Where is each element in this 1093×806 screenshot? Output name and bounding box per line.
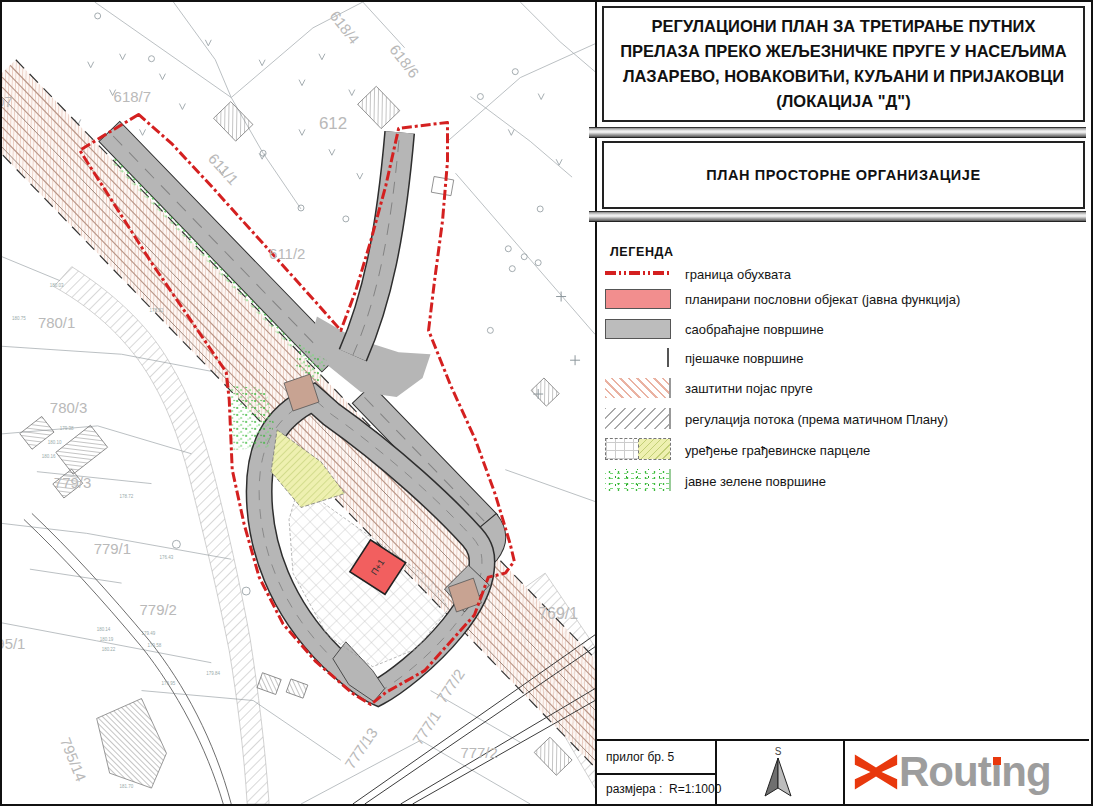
svg-text:180.19: 180.19 bbox=[100, 637, 114, 642]
logo-i-stem: ı bbox=[991, 748, 1002, 795]
map-panel: П+1 618/7 618/4 618/6 612 611/1 611/2 78… bbox=[2, 2, 597, 804]
routing-x-icon bbox=[853, 749, 899, 795]
scale-label: размјера : R=1:1000 bbox=[606, 782, 721, 796]
svg-text:180.22: 180.22 bbox=[102, 647, 116, 652]
logo-letter-i: ı bbox=[991, 750, 1002, 794]
parcel-label: 618/7 bbox=[114, 88, 151, 105]
parcel-label: 777/2 bbox=[433, 666, 468, 706]
grid-half bbox=[606, 439, 638, 459]
svg-text:176.43: 176.43 bbox=[159, 555, 173, 560]
parcel-label: 611/1 bbox=[205, 150, 242, 188]
parcel-label: 07 bbox=[2, 93, 13, 110]
plan-sheet: П+1 618/7 618/4 618/6 612 611/1 611/2 78… bbox=[0, 0, 1093, 806]
footer-divider bbox=[715, 741, 717, 806]
north-arrow: S bbox=[757, 744, 799, 806]
parcel-label: 795/14 bbox=[57, 735, 90, 784]
logo-part1: Rout bbox=[899, 750, 991, 794]
svg-text:178.72: 178.72 bbox=[120, 494, 134, 499]
legend-label: регулација потока (према матичном Плану) bbox=[685, 412, 948, 427]
plan-subtitle: ПЛАН ПРОСТОРНЕ ОРГАНИЗАЦИЈЕ bbox=[706, 167, 981, 183]
site-plan-drawing: П+1 618/7 618/4 618/6 612 611/1 611/2 78… bbox=[2, 2, 595, 804]
parcel-label: 780/3 bbox=[50, 399, 87, 416]
parcel-arrangement-symbol bbox=[605, 438, 671, 460]
svg-text:181.70: 181.70 bbox=[120, 784, 134, 789]
divider-bar bbox=[589, 127, 1086, 138]
legend-label: пјешачке површине bbox=[685, 351, 804, 366]
parcel-label: 795/1 bbox=[2, 635, 25, 652]
north-letter: S bbox=[775, 746, 782, 757]
svg-text:179.58: 179.58 bbox=[148, 643, 162, 648]
parcel-label: 777/1 bbox=[409, 708, 444, 748]
yellow-half bbox=[638, 439, 671, 459]
legend-label: уређење грађевинске парцеле bbox=[685, 443, 870, 458]
traffic-surface-symbol bbox=[605, 319, 671, 339]
boundary-line-symbol bbox=[605, 271, 671, 275]
svg-text:180.14: 180.14 bbox=[97, 627, 111, 632]
title-line-1: РЕГУЛАЦИОНИ ПЛАН ЗА ТРЕТИРАЊЕ ПУТНИХ bbox=[604, 14, 1083, 39]
title-block-panel: РЕГУЛАЦИОНИ ПЛАН ЗА ТРЕТИРАЊЕ ПУТНИХ ПРЕ… bbox=[597, 2, 1091, 804]
logo-red-dot-icon bbox=[993, 757, 1001, 765]
footer-titleblock: прилог бр. 5 размјера : R=1:1000 S Routı… bbox=[597, 739, 1089, 806]
svg-text:179.95: 179.95 bbox=[161, 681, 175, 686]
title-line-2: ПРЕЛАЗА ПРЕКО ЖЕЉЕЗНИЧКЕ ПРУГЕ У НАСЕЉИМ… bbox=[604, 39, 1083, 64]
plan-title: РЕГУЛАЦИОНИ ПЛАН ЗА ТРЕТИРАЊЕ ПУТНИХ ПРЕ… bbox=[602, 6, 1085, 122]
legend-heading: ЛЕГЕНДА bbox=[610, 245, 674, 259]
parcel-label: 769/1 bbox=[538, 605, 578, 622]
planned-object-symbol bbox=[605, 289, 671, 309]
attachment-number: прилог бр. 5 bbox=[606, 750, 674, 764]
legend-label: саобраћајне површине bbox=[685, 322, 824, 337]
svg-text:179.84: 179.84 bbox=[206, 671, 220, 676]
footer-divider bbox=[843, 741, 845, 806]
legend-label: заштитни појас пруге bbox=[685, 381, 813, 396]
railway-protection-symbol bbox=[605, 378, 671, 398]
parcel-label: 611/2 bbox=[269, 245, 305, 262]
logo-part2: ng bbox=[1001, 750, 1050, 794]
parcel-label: 779/2 bbox=[140, 601, 177, 618]
svg-text:180.03: 180.03 bbox=[50, 283, 64, 288]
pedestrian-surface-symbol bbox=[605, 348, 669, 367]
svg-text:179.49: 179.49 bbox=[142, 631, 156, 636]
public-green-symbol bbox=[605, 469, 671, 491]
footer-divider bbox=[597, 773, 715, 775]
title-line-3: ЛАЗАРЕВО, НОВАКОВИЋИ, КУЉАНИ И ПРИЈАКОВЦ… bbox=[604, 64, 1083, 89]
svg-text:179.38: 179.38 bbox=[60, 426, 74, 431]
plan-subtitle-box: ПЛАН ПРОСТОРНЕ ОРГАНИЗАЦИЈЕ bbox=[602, 141, 1085, 209]
legend-label: планирани пословни објекат (јавна функци… bbox=[685, 292, 960, 307]
svg-text:180.16: 180.16 bbox=[42, 454, 56, 459]
routing-logo: Routıng bbox=[853, 749, 1051, 795]
parcel-label: 618/6 bbox=[386, 41, 422, 81]
stream-regulation-symbol bbox=[605, 408, 671, 429]
svg-text:178.92: 178.92 bbox=[150, 308, 164, 313]
svg-text:180.75: 180.75 bbox=[12, 316, 26, 321]
svg-text:180.10: 180.10 bbox=[48, 440, 62, 445]
parcel-label: 777/2 bbox=[460, 744, 497, 761]
branch-road bbox=[353, 132, 400, 355]
parcel-label: 780/1 bbox=[38, 314, 75, 331]
routing-logo-text: Routıng bbox=[899, 750, 1051, 794]
parcel-label: 779/3 bbox=[54, 474, 91, 491]
parcel-label: 618/4 bbox=[327, 7, 363, 47]
legend-label: јавне зелене површине bbox=[685, 474, 826, 489]
parcel-label: 612 bbox=[319, 114, 347, 133]
divider-bar bbox=[589, 211, 1086, 222]
parcel-label: 779/1 bbox=[94, 540, 131, 557]
title-line-4: (ЛОКАЦИЈА "Д") bbox=[604, 89, 1083, 114]
legend-label: граница обухвата bbox=[685, 267, 791, 282]
